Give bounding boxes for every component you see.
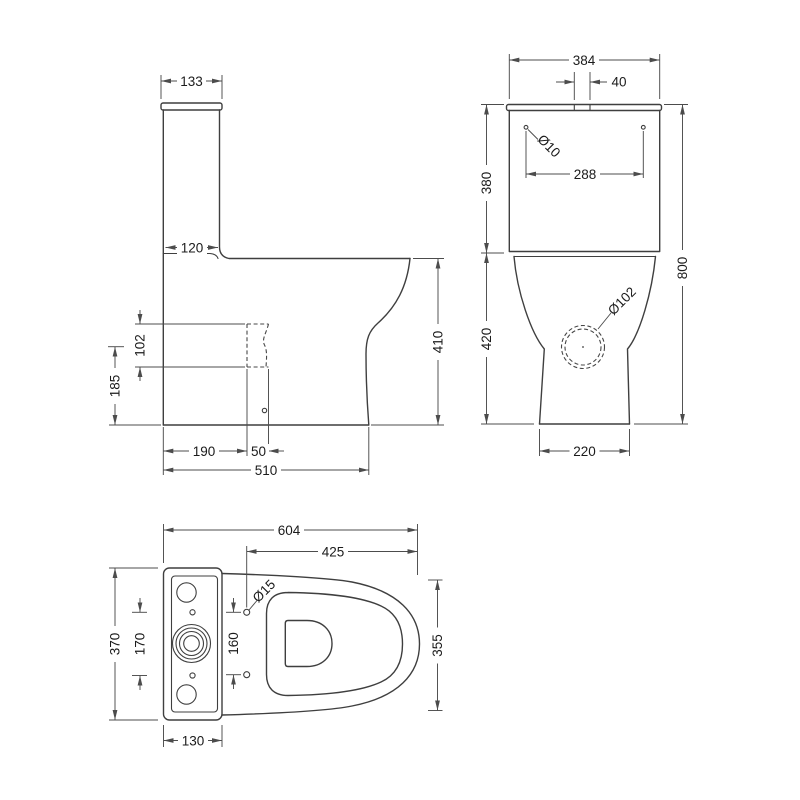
dim-label-o15: Ø15 [250, 577, 279, 606]
dim-label-410: 410 [431, 324, 446, 360]
svg-text:160: 160 [226, 632, 241, 655]
svg-text:120: 120 [181, 241, 204, 256]
technical-drawing-page: 133 120 102 185 190 50 510 410 [0, 0, 800, 800]
svg-text:425: 425 [322, 545, 345, 560]
side-bowl-front-curve [366, 259, 410, 426]
side-cistern-lid [161, 103, 222, 110]
dim-label-133: 133 [177, 74, 206, 89]
plan-cistern-hole-top [177, 583, 196, 602]
dim-label-102: 102 [133, 328, 148, 364]
dim-label-800: 800 [675, 250, 690, 286]
dim-label-370: 370 [108, 626, 123, 662]
svg-text:133: 133 [180, 74, 203, 89]
plan-view: 604 425 Ø15 370 170 160 355 130 [108, 523, 446, 749]
dim-label-120: 120 [177, 241, 207, 256]
dim-label-130: 130 [178, 734, 208, 749]
svg-text:410: 410 [431, 331, 446, 354]
svg-text:50: 50 [251, 444, 266, 459]
front-fixing-hole-right [641, 125, 645, 129]
svg-text:Ø102: Ø102 [605, 284, 639, 318]
dim-label-425: 425 [318, 545, 348, 560]
dim-label-40: 40 [611, 75, 626, 90]
svg-text:220: 220 [573, 444, 596, 459]
dim-label-o10: Ø10 [535, 132, 564, 161]
plan-flush-valve-ring3 [180, 632, 204, 656]
svg-text:Ø15: Ø15 [250, 577, 279, 606]
leader-line-o102 [598, 313, 611, 329]
dim-label-190: 190 [189, 444, 219, 459]
dim-label-220: 220 [570, 444, 600, 459]
dim-label-170: 170 [133, 626, 148, 662]
front-cistern-lid [507, 105, 662, 111]
svg-text:384: 384 [573, 53, 596, 68]
svg-text:800: 800 [675, 257, 690, 280]
leader-line-o10 [528, 130, 538, 140]
dim-label-185: 185 [108, 368, 123, 404]
dim-label-o102: Ø102 [605, 284, 639, 318]
dim-label-604: 604 [274, 523, 304, 538]
front-fixing-hole-left [524, 125, 528, 129]
front-bowl-left-curve [514, 257, 544, 425]
dim-label-510: 510 [251, 463, 281, 478]
svg-text:355: 355 [430, 634, 445, 657]
svg-text:170: 170 [133, 633, 148, 656]
front-outlet-center-mark [582, 346, 584, 348]
dim-label-355: 355 [430, 628, 445, 664]
plan-small-hole-bottom [190, 673, 195, 678]
svg-text:370: 370 [108, 633, 123, 656]
svg-text:Ø10: Ø10 [535, 132, 564, 161]
svg-text:420: 420 [479, 328, 494, 351]
svg-text:288: 288 [574, 167, 597, 182]
plan-seat-hole-top [244, 609, 250, 615]
dim-label-50: 50 [248, 444, 269, 459]
front-bowl-right-curve [628, 257, 656, 425]
plan-seat-ring [267, 593, 403, 696]
plan-seat-hole-bottom [244, 672, 250, 678]
dim-label-288: 288 [570, 167, 600, 182]
dim-label-380: 380 [479, 165, 494, 201]
plan-flush-valve-ring1 [173, 625, 211, 663]
plan-flush-valve-ring4 [184, 636, 200, 652]
dim-label-384: 384 [569, 53, 599, 68]
side-view: 133 120 102 185 190 50 510 410 [108, 74, 446, 478]
dim-label-160: 160 [226, 626, 241, 662]
plan-bowl-water-area [285, 621, 332, 667]
side-outlet-break-line [264, 324, 269, 367]
plan-small-hole-top [190, 610, 195, 615]
plan-flush-valve-ring2 [176, 628, 207, 659]
svg-text:190: 190 [193, 444, 216, 459]
dim-label-420: 420 [479, 321, 494, 357]
side-cistern-right-and-bowl-top [220, 110, 411, 259]
svg-text:102: 102 [133, 334, 148, 357]
svg-text:604: 604 [278, 523, 301, 538]
plan-cistern-hole-bottom [177, 685, 196, 704]
svg-text:130: 130 [182, 734, 205, 749]
svg-text:510: 510 [255, 463, 278, 478]
svg-text:185: 185 [108, 375, 123, 398]
toilet-dimension-drawing: 133 120 102 185 190 50 510 410 [0, 0, 800, 800]
svg-text:380: 380 [479, 172, 494, 195]
front-view: 384 40 Ø10 288 380 420 800 Ø102 220 [479, 53, 690, 459]
svg-text:40: 40 [611, 75, 626, 90]
side-fixing-hole [262, 408, 266, 412]
